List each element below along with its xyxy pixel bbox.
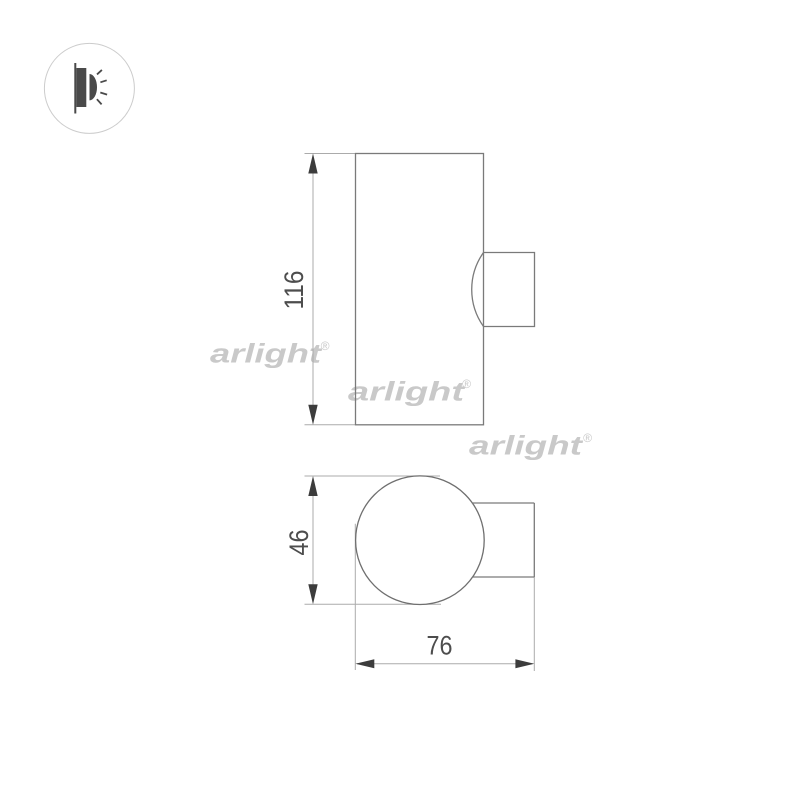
svg-text:arlight: arlight [348, 377, 465, 407]
svg-text:®: ® [583, 431, 592, 445]
svg-text:arlight: arlight [210, 339, 322, 369]
svg-text:arlight: arlight [469, 431, 583, 461]
svg-text:76: 76 [427, 631, 453, 661]
svg-text:®: ® [462, 377, 471, 391]
svg-text:116: 116 [279, 271, 309, 310]
svg-text:®: ® [321, 339, 330, 353]
svg-text:46: 46 [284, 530, 314, 556]
